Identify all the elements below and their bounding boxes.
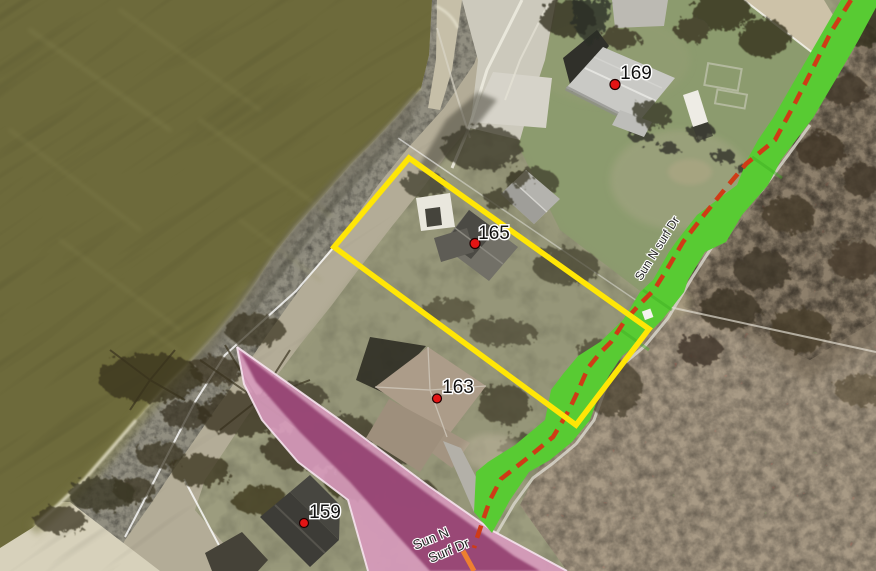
svg-text:169: 169 [620,63,652,84]
svg-text:165: 165 [478,223,510,244]
svg-text:163: 163 [442,377,474,398]
svg-text:159: 159 [309,502,341,523]
